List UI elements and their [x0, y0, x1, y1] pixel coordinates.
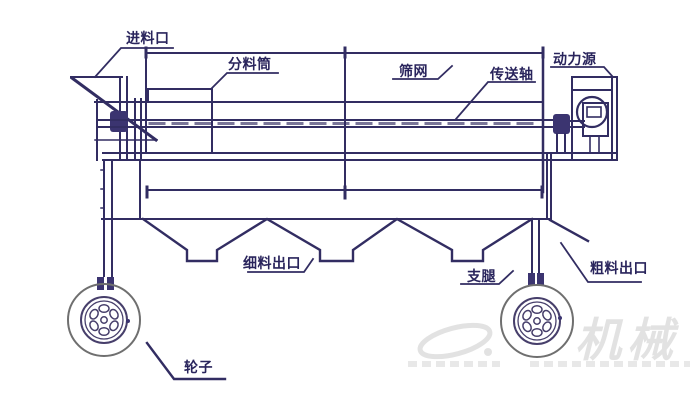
label-screen-mesh: 筛网: [393, 63, 452, 80]
right-hub-inner: [518, 302, 556, 340]
funnel-outline: [143, 219, 532, 261]
watermark-swoosh: [417, 319, 493, 363]
label-text-fine-outlet: 细料出口: [243, 255, 301, 272]
right-hub-outer: [514, 298, 560, 344]
right-axle-bracket-b: [537, 273, 544, 285]
motor-pulley: [577, 97, 607, 127]
left-hub-center: [101, 317, 107, 323]
label-text-transmission-shaft: 传送轴: [489, 66, 534, 83]
bearing-block: [110, 111, 128, 132]
label-text-screen-mesh: 筛网: [399, 63, 428, 80]
spoke-hole: [108, 320, 120, 332]
right-hub-center: [534, 318, 540, 324]
left-wheel: [68, 284, 140, 356]
label-text-wheel: 轮子: [184, 359, 213, 376]
spoke-hole: [99, 305, 109, 313]
spoke-hole: [108, 308, 120, 320]
spoke-hole: [88, 320, 100, 332]
spoke-hole: [88, 308, 100, 320]
trommel-screen-diagram: 机械: [0, 0, 700, 412]
coarse-chute: [550, 220, 588, 241]
drum-frame: [102, 48, 616, 219]
leader-line: [456, 82, 535, 119]
spoke-hole: [541, 309, 553, 321]
right-valve-dot: [558, 316, 562, 320]
label-text-support-leg: 支腿: [466, 268, 496, 285]
label-fine-outlet: 细料出口: [243, 255, 313, 272]
label-text-distribution-cylinder: 分料筒: [228, 56, 272, 73]
feed-hopper: [71, 77, 157, 160]
watermark-brand-text: 机械: [575, 313, 680, 367]
motor-assembly: [553, 77, 617, 160]
watermark-swoosh-dot: [484, 348, 492, 356]
label-coarse-outlet: 粗料出口: [561, 243, 648, 282]
label-distribution-cylinder: 分料筒: [211, 56, 278, 89]
label-wheel: 轮子: [147, 343, 225, 379]
spoke-hole: [541, 321, 553, 333]
motor-body-detail: [587, 107, 601, 117]
leader-line: [211, 73, 278, 89]
leader-line: [551, 67, 613, 77]
right-wheel: [501, 285, 573, 357]
machine: [68, 48, 617, 357]
spoke-hole: [532, 329, 542, 337]
left-hub-outer: [81, 297, 127, 343]
spoke-hole: [521, 321, 533, 333]
callout-labels: 进料口 分料筒 筛网 传送轴 动力源 细料出口 支腿 粗料出口: [95, 30, 648, 379]
discharge-funnels: [143, 219, 588, 261]
label-text-power-source: 动力源: [553, 51, 597, 68]
left-valve-dot: [126, 319, 130, 323]
diagram-canvas: 机械: [0, 0, 700, 412]
label-support-leg: 支腿: [461, 268, 513, 285]
spoke-hole: [99, 328, 109, 336]
drive-shaft: [97, 120, 584, 127]
label-text-coarse-outlet: 粗料出口: [590, 260, 648, 277]
spoke-hole: [532, 306, 542, 314]
coupling-block: [553, 114, 570, 134]
label-power-source: 动力源: [551, 51, 613, 77]
spoke-hole: [521, 309, 533, 321]
right-axle-bracket-a: [528, 273, 535, 285]
left-hub-spokes: [88, 305, 120, 336]
right-hub-spokes: [521, 306, 553, 337]
label-text-feed-inlet: 进料口: [126, 30, 170, 47]
label-transmission-shaft: 传送轴: [456, 66, 535, 119]
right-tire: [501, 285, 573, 357]
left-hub-inner: [85, 301, 123, 339]
